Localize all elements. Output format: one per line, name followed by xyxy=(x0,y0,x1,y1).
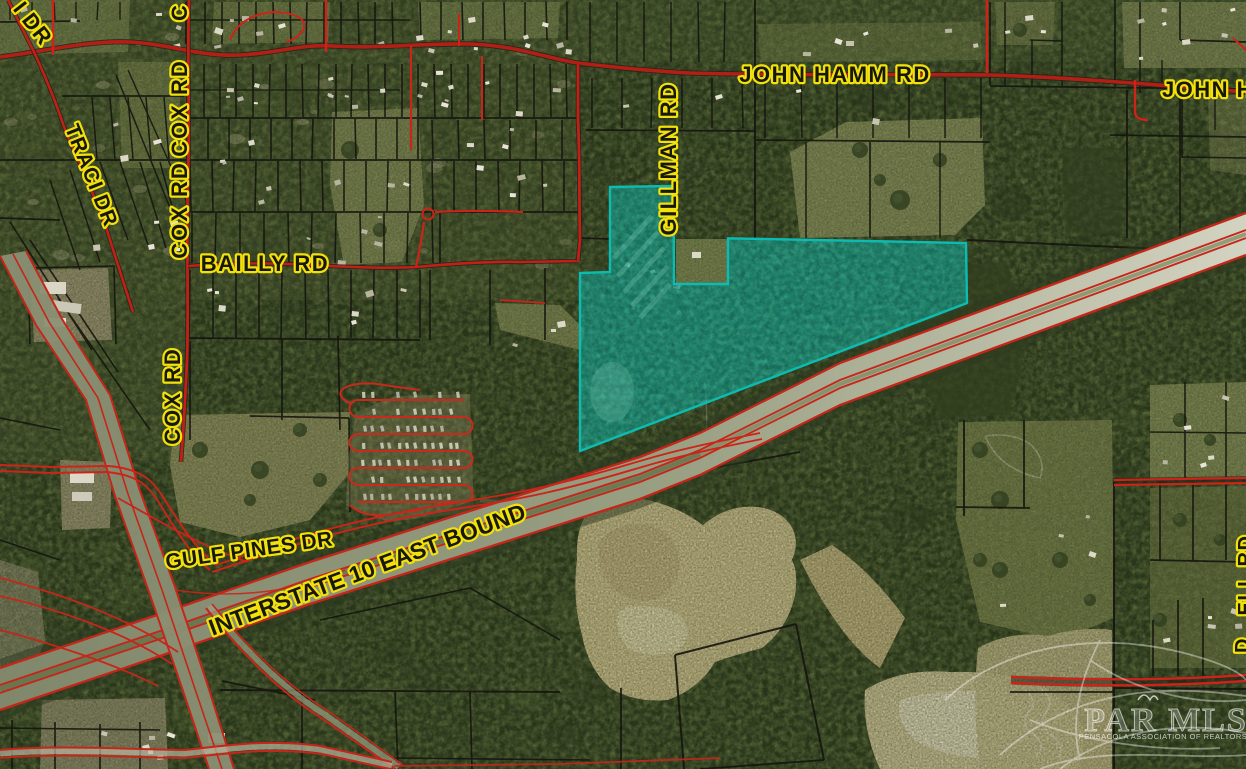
svg-text:COX RD: COX RD xyxy=(167,161,192,259)
svg-text:C: C xyxy=(167,3,192,21)
svg-text:COX RD: COX RD xyxy=(160,347,185,445)
svg-text:JOHN HAMM RD: JOHN HAMM RD xyxy=(739,62,931,87)
svg-text:GILLMAN RD: GILLMAN RD xyxy=(656,82,681,235)
svg-text:ELL RD: ELL RD xyxy=(1235,535,1246,616)
svg-text:PENSACOLA ASSOCIATION OF REALT: PENSACOLA ASSOCIATION OF REALTORS xyxy=(1079,732,1246,741)
svg-text:JOHN H: JOHN H xyxy=(1162,77,1246,102)
svg-text:D: D xyxy=(1232,637,1246,653)
svg-text:COX RD: COX RD xyxy=(167,59,192,157)
svg-text:BAILLY RD: BAILLY RD xyxy=(201,251,329,276)
